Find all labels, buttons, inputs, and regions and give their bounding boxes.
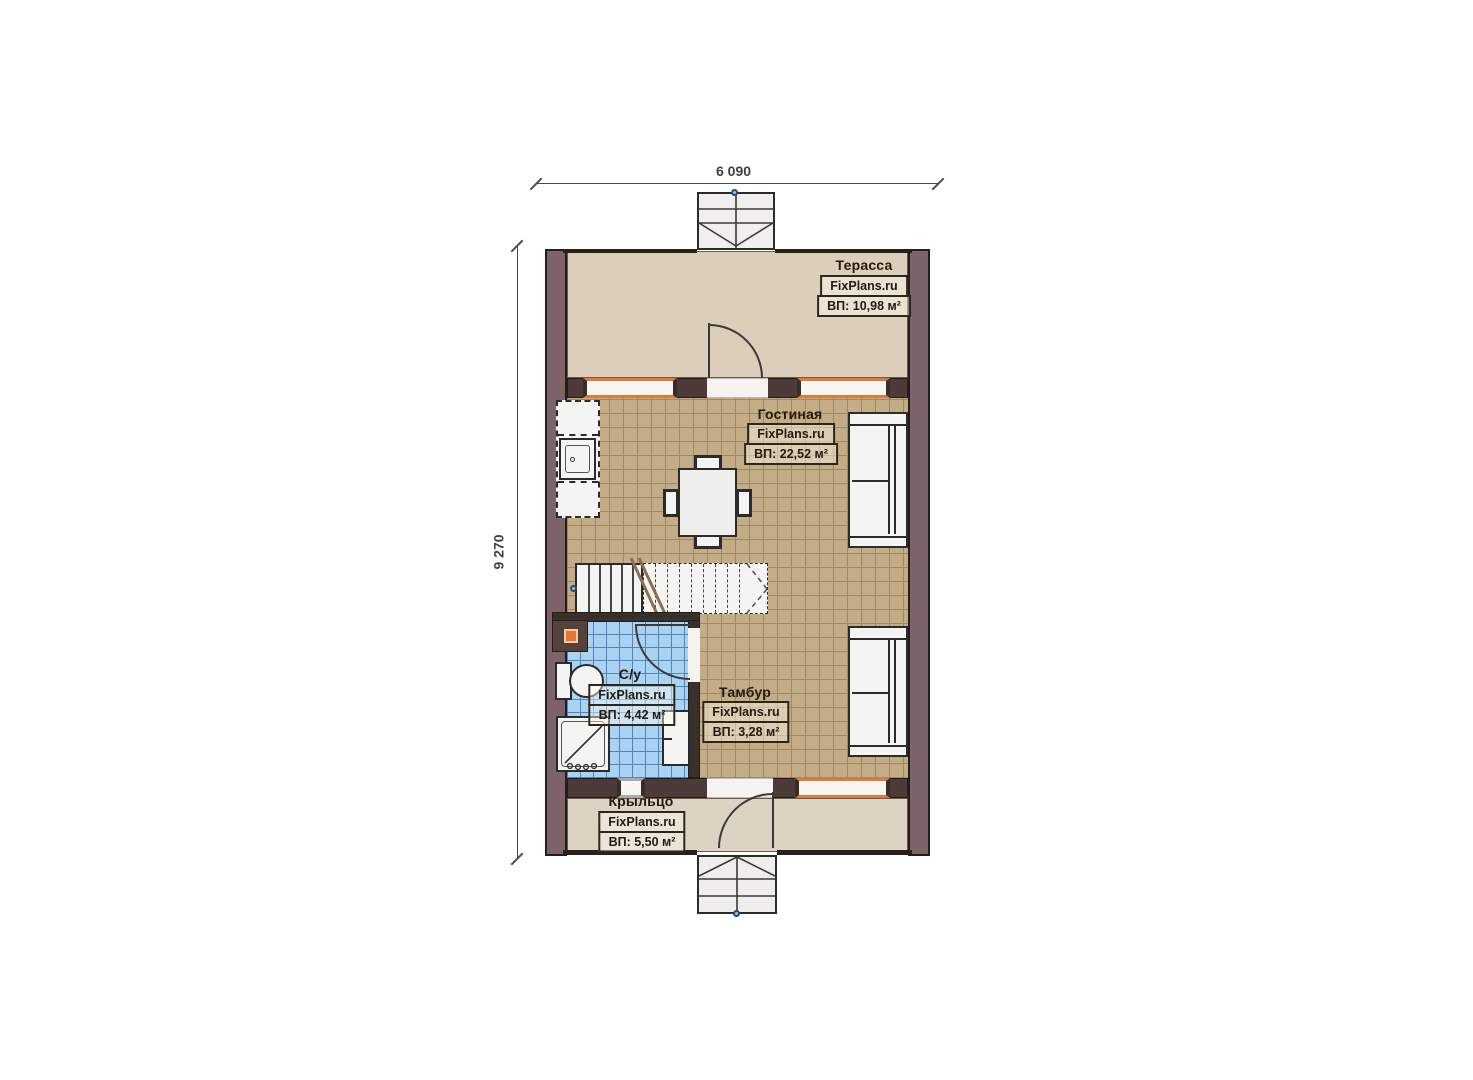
dimension-width-line [536,183,938,184]
dimension-width-label: 6 090 [716,163,751,179]
bathroom-label: С/у [619,666,641,682]
terrace-door-opening [707,378,768,398]
terrace-top-edge [775,249,912,253]
sofa-upper [848,412,908,548]
living-window-left [583,378,677,398]
stairs-break-lines [565,550,775,620]
dimension-height-line [517,245,518,858]
watermark: FixPlans.ru [820,275,907,297]
porch-bottom-edge [777,850,912,855]
bathroom-area: ВП: 4,42 м² [589,704,676,726]
watermark: FixPlans.ru [702,701,789,723]
sink-drain [570,457,575,462]
watermark: FixPlans.ru [598,811,685,833]
living-label: Гостиная [758,406,823,422]
watermark: FixPlans.ru [747,423,834,445]
vestibule-tag: FixPlans.ru ВП: 3,28 м² [702,701,789,743]
dimension-tick [932,178,945,191]
dining-chair-left [663,489,679,517]
terrace-area: ВП: 10,98 м² [817,295,911,317]
sofa-lower [848,626,908,757]
right-wall [908,249,930,856]
sink-basin [565,445,590,473]
floor-plan: 6 090 9 270 [0,0,1473,1080]
terrace-top-edge [563,249,697,253]
watermark: FixPlans.ru [588,684,675,706]
porch-steps [697,855,777,914]
terrace-label: Терасса [836,257,893,273]
porch-tag: FixPlans.ru ВП: 5,50 м² [598,811,685,853]
vestibule-window [795,778,890,798]
flue-block [552,620,588,652]
entry-marker [731,189,738,196]
living-window-right [797,378,890,398]
dimension-height-label: 9 270 [491,534,507,569]
porch-label: Крыльцо [608,793,673,809]
bathroom-tag: FixPlans.ru ВП: 4,42 м² [588,684,675,726]
vestibule-area: ВП: 3,28 м² [703,721,790,743]
porch-area: ВП: 5,50 м² [599,831,686,853]
terrace-steps [697,192,775,250]
living-tag: FixPlans.ru ВП: 22,52 м² [744,423,838,465]
flue-vent-icon [564,629,578,643]
dining-chair-right [736,489,752,517]
dining-table [678,468,737,537]
living-area: ВП: 22,52 м² [744,443,838,465]
terrace-tag: FixPlans.ru ВП: 10,98 м² [817,275,911,317]
kitchen-sink [559,438,596,480]
porch-steps-lines [699,857,775,912]
porch-marker [733,910,740,917]
terrace-steps-lines [699,194,773,248]
stairs-marker [570,585,577,592]
vestibule-label: Тамбур [719,684,771,700]
dimension-tick [530,178,543,191]
